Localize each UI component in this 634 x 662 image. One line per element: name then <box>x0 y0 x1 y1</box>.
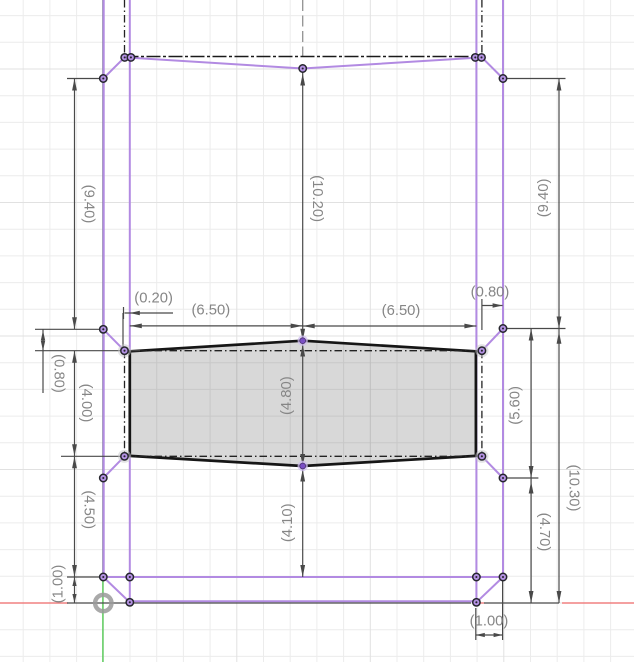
svg-text:(9.40): (9.40) <box>536 179 552 218</box>
svg-text:(6.50): (6.50) <box>382 303 421 319</box>
svg-text:(0.80): (0.80) <box>51 354 67 393</box>
svg-text:(4.10): (4.10) <box>280 503 296 542</box>
svg-text:(0.80): (0.80) <box>471 285 510 301</box>
svg-text:(1.00): (1.00) <box>470 614 509 630</box>
svg-text:(0.20): (0.20) <box>134 290 173 306</box>
svg-text:(4.70): (4.70) <box>536 513 552 552</box>
svg-text:(5.60): (5.60) <box>507 386 523 425</box>
svg-text:(10.30): (10.30) <box>566 465 582 512</box>
svg-text:(4.00): (4.00) <box>78 384 94 423</box>
svg-text:(9.40): (9.40) <box>80 185 96 224</box>
svg-text:(4.80): (4.80) <box>279 376 295 415</box>
svg-text:(4.50): (4.50) <box>80 490 96 529</box>
svg-text:(6.50): (6.50) <box>191 303 230 319</box>
svg-text:(10.20): (10.20) <box>309 175 325 222</box>
svg-text:(1.00): (1.00) <box>51 565 67 604</box>
